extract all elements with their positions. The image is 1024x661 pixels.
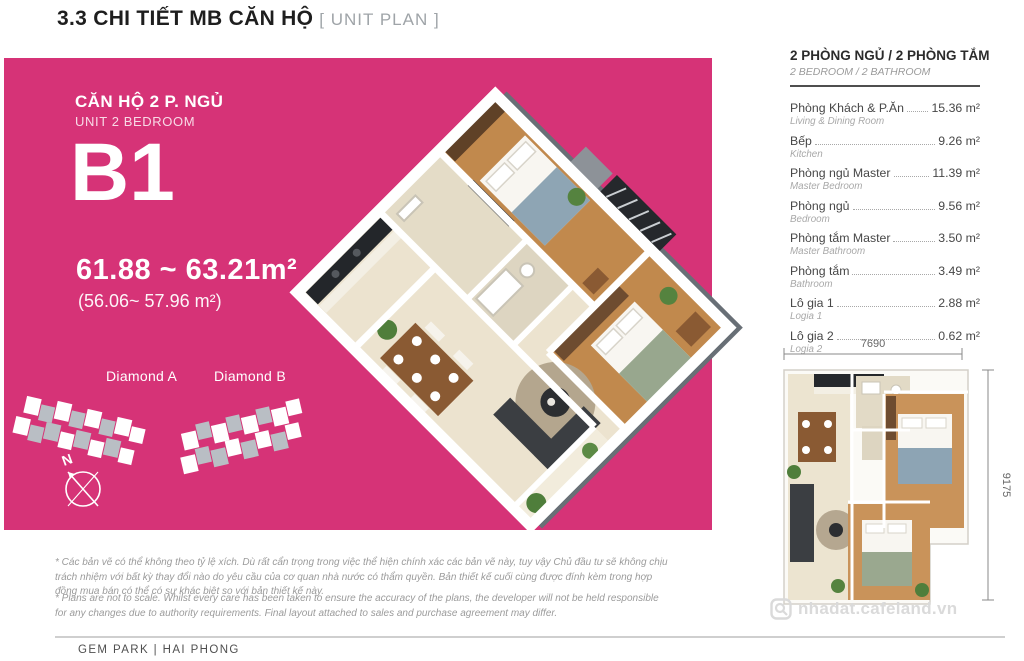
block-diamond-a-label: Diamond A: [106, 368, 177, 384]
page-title-subtitle: [ UNIT PLAN ]: [319, 10, 439, 29]
room-name-en: Bedroom: [790, 214, 980, 225]
room-name: Phòng tắm: [790, 264, 849, 278]
room-name: Phòng ngủ: [790, 199, 850, 213]
room-name: Lô gia 1: [790, 296, 834, 310]
room-row-kitchen: Bếp 9.26 m² Kitchen: [790, 134, 980, 160]
page-title-text: 3.3 CHI TIẾT MB CĂN HỘ: [57, 7, 313, 30]
unit-code: B1: [70, 132, 175, 214]
compass-icon: N: [50, 450, 112, 516]
room-row-logia1: Lô gia 1 2.88 m² Logia 1: [790, 296, 980, 322]
disclaimer-english: * Plans are not to scale. Whilst every c…: [55, 592, 673, 621]
room-name-en: Master Bathroom: [790, 246, 980, 257]
block-diamond-b-label: Diamond B: [214, 368, 286, 384]
room-area: 15.36 m²: [931, 101, 980, 115]
bedroom-2d: [848, 504, 930, 600]
room-name: Phòng ngủ Master: [790, 166, 891, 180]
room-row-master-bedroom: Phòng ngủ Master 11.39 m² Master Bedroom: [790, 166, 980, 192]
room-area: 9.56 m²: [938, 199, 980, 213]
room-area: 3.49 m²: [938, 264, 980, 278]
dimension-width-label: 7690: [861, 338, 885, 350]
room-area: 2.88 m²: [938, 296, 980, 310]
room-list-subtitle: 2 BEDROOM / 2 BATHROOM: [790, 66, 980, 78]
room-name: Phòng tắm Master: [790, 231, 890, 245]
unit-3d-floorplan: [278, 55, 748, 560]
footer-divider: [55, 636, 1005, 638]
room-name-en: Kitchen: [790, 149, 980, 160]
room-name-en: Logia 1: [790, 311, 980, 322]
dimension-height-label: 9175: [1000, 473, 1012, 497]
room-row-bathroom: Phòng tắm 3.49 m² Bathroom: [790, 264, 980, 290]
footer-project-name: GEM PARK | HAI PHONG: [78, 644, 240, 656]
room-name-en: Master Bedroom: [790, 181, 980, 192]
page-title: 3.3 CHI TIẾT MB CĂN HỘ[ UNIT PLAN ]: [57, 7, 440, 31]
watermark: nhadat.cafeland.vn: [770, 598, 957, 620]
room-name: Bếp: [790, 134, 812, 148]
dotted-leader: [894, 176, 930, 177]
room-name-en: Bathroom: [790, 279, 980, 290]
room-area: 11.39 m²: [932, 166, 980, 180]
unit-type-title: CĂN HỘ 2 P. NGỦ: [75, 92, 223, 112]
unit-area-net: (56.06~ 57.96 m²): [78, 291, 222, 312]
watermark-text: nhadat.cafeland.vn: [798, 599, 957, 619]
unit-area-gross: 61.88 ~ 63.21m²: [76, 254, 297, 287]
dotted-leader: [815, 144, 935, 145]
room-name-en: Living & Dining Room: [790, 116, 980, 127]
dimension-height: 9175: [982, 370, 1012, 600]
dotted-leader: [907, 111, 929, 112]
room-area: 9.26 m²: [938, 134, 980, 148]
living-dining-2d: [787, 374, 856, 600]
dotted-leader: [853, 209, 936, 210]
room-list-divider: [790, 85, 980, 87]
magnifier-icon: [770, 598, 792, 620]
room-row-living: Phòng Khách & P.Ăn 15.36 m² Living & Din…: [790, 101, 980, 127]
room-area: 3.50 m²: [938, 231, 980, 245]
unit-2d-floorplan: 7690 9175: [778, 334, 1018, 610]
svg-text:N: N: [60, 450, 75, 468]
dotted-leader: [852, 274, 935, 275]
dotted-leader: [893, 241, 935, 242]
room-row-master-bathroom: Phòng tắm Master 3.50 m² Master Bathroom: [790, 231, 980, 257]
dotted-leader: [837, 306, 936, 307]
room-list-title: 2 PHÒNG NGỦ / 2 PHÒNG TẮM: [790, 48, 980, 63]
room-name: Phòng Khách & P.Ăn: [790, 101, 904, 115]
room-list-panel: 2 PHÒNG NGỦ / 2 PHÒNG TẮM 2 BEDROOM / 2 …: [790, 48, 980, 361]
room-row-bedroom: Phòng ngủ 9.56 m² Bedroom: [790, 199, 980, 225]
dimension-width: 7690: [784, 338, 962, 360]
